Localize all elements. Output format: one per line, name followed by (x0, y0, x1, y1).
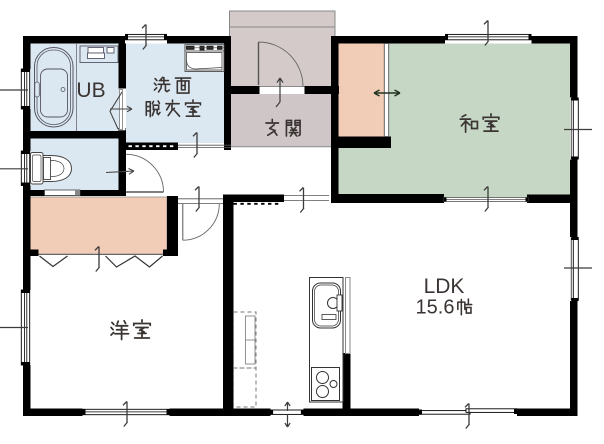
svg-text:UB: UB (76, 79, 105, 102)
svg-text:15.6: 15.6 (416, 297, 455, 319)
svg-text:LDK: LDK (424, 275, 465, 298)
